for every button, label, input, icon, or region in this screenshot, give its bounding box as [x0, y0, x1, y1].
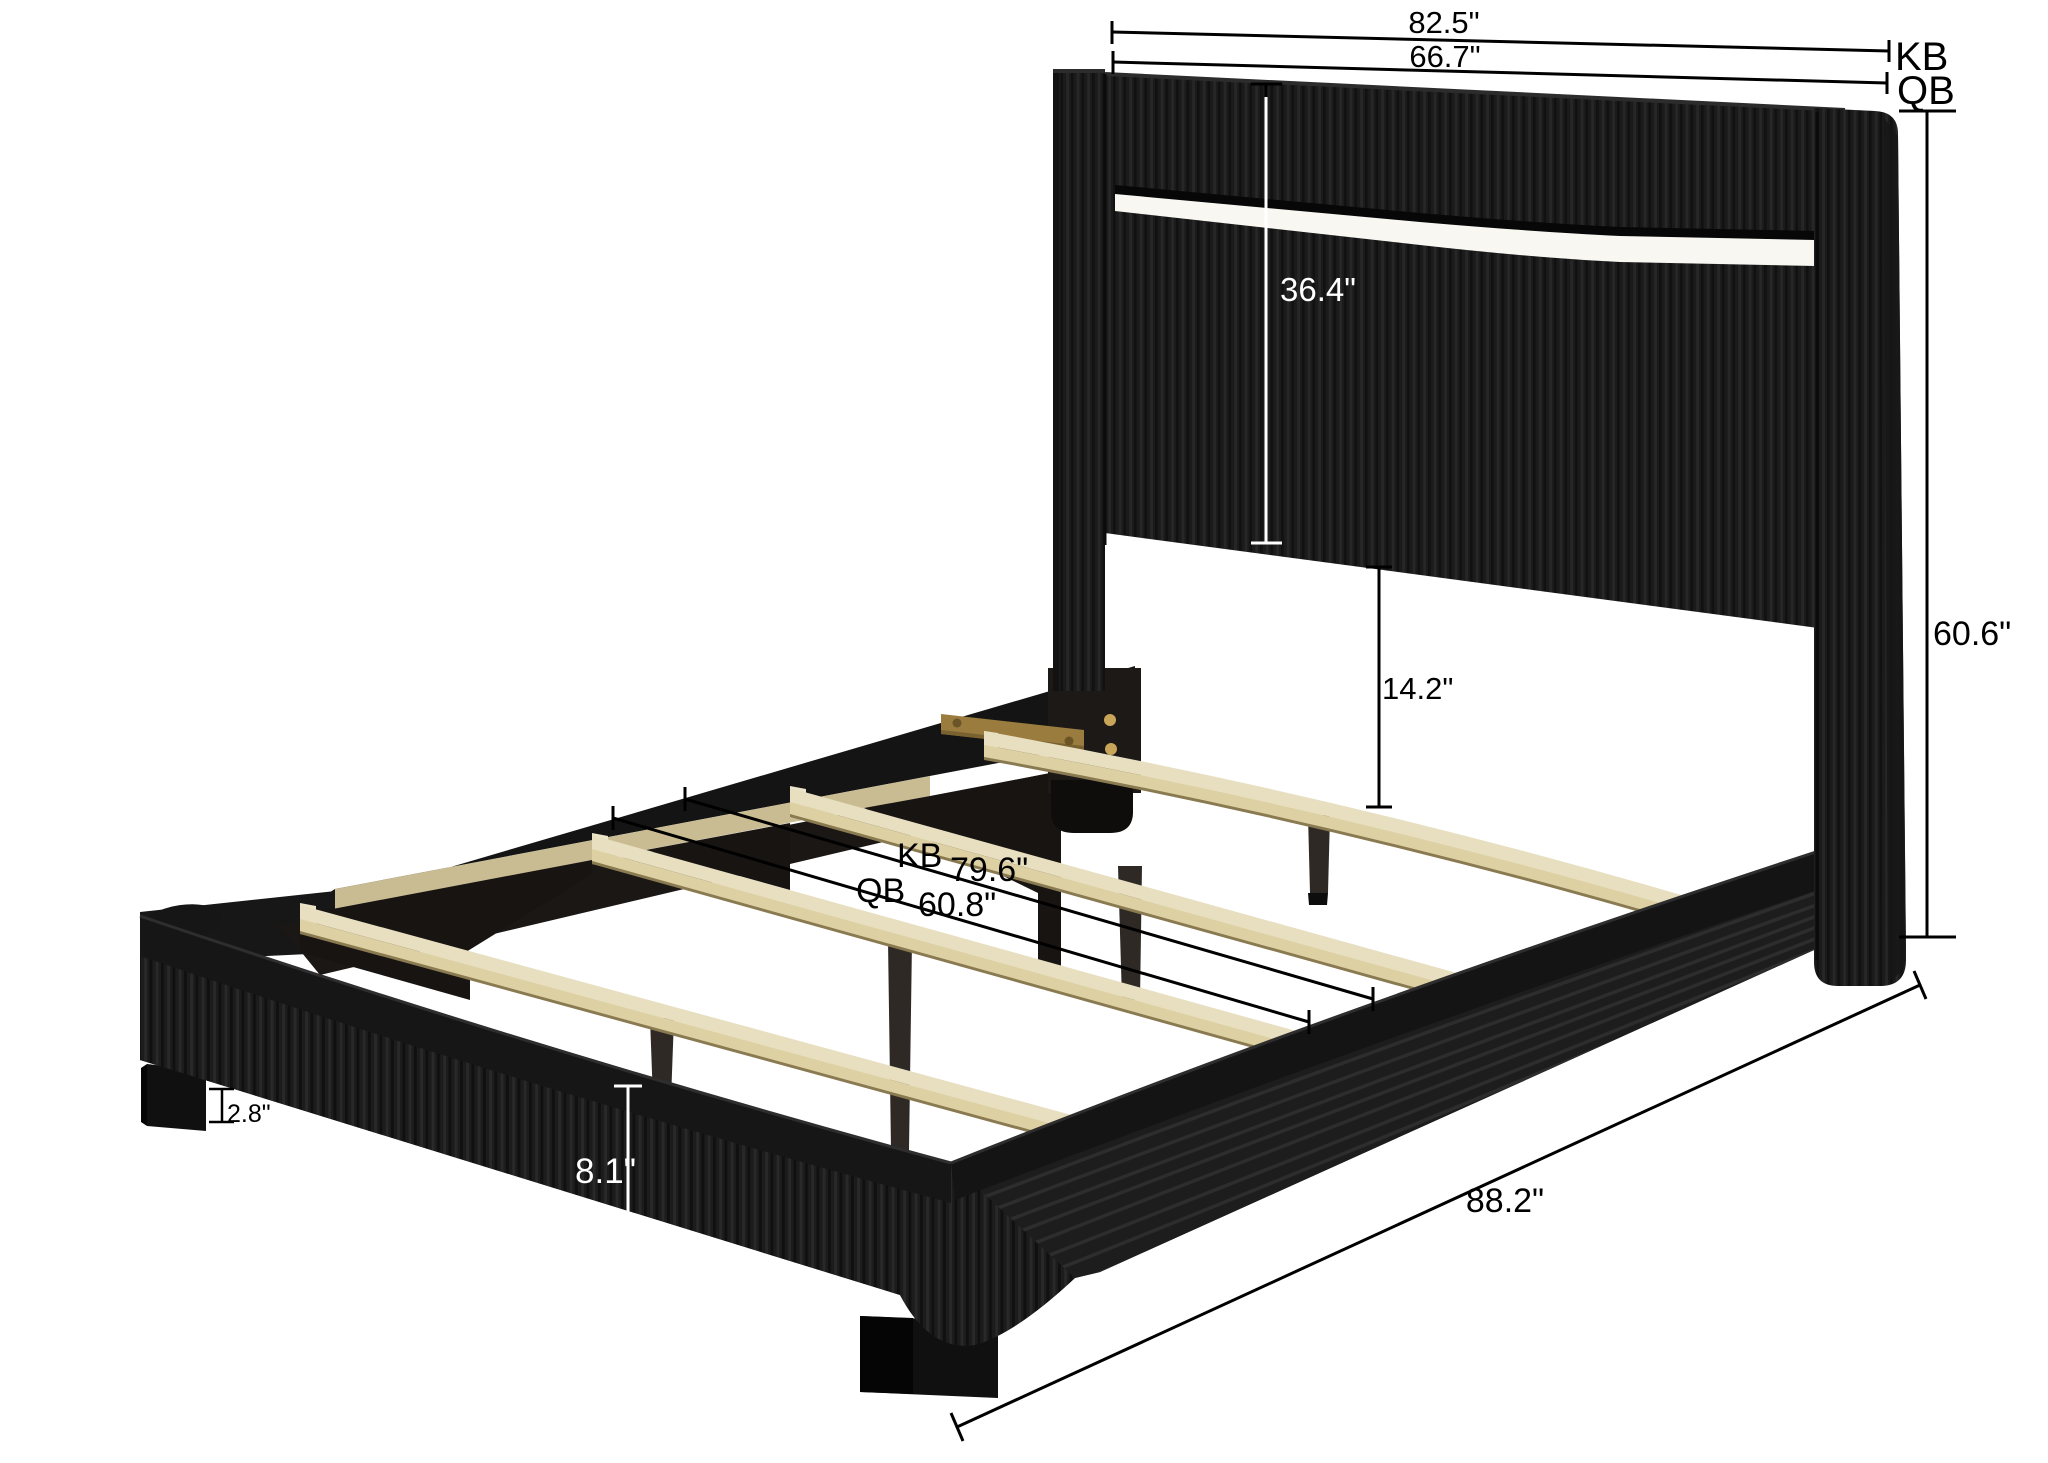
svg-text:60.6": 60.6"	[1933, 615, 2011, 653]
svg-text:79.6": 79.6"	[950, 851, 1028, 889]
svg-text:QB: QB	[1897, 69, 1955, 113]
svg-text:2.8": 2.8"	[227, 1100, 271, 1128]
svg-text:60.8": 60.8"	[918, 886, 996, 924]
svg-text:14.2": 14.2"	[1382, 671, 1453, 706]
svg-text:8.1": 8.1"	[575, 1152, 636, 1191]
svg-text:36.4": 36.4"	[1280, 271, 1356, 308]
svg-text:88.2": 88.2"	[1466, 1182, 1544, 1220]
svg-text:82.5": 82.5"	[1408, 5, 1479, 40]
svg-text:QB: QB	[856, 872, 905, 910]
svg-text:KB: KB	[897, 837, 942, 875]
svg-text:66.7": 66.7"	[1409, 39, 1480, 74]
